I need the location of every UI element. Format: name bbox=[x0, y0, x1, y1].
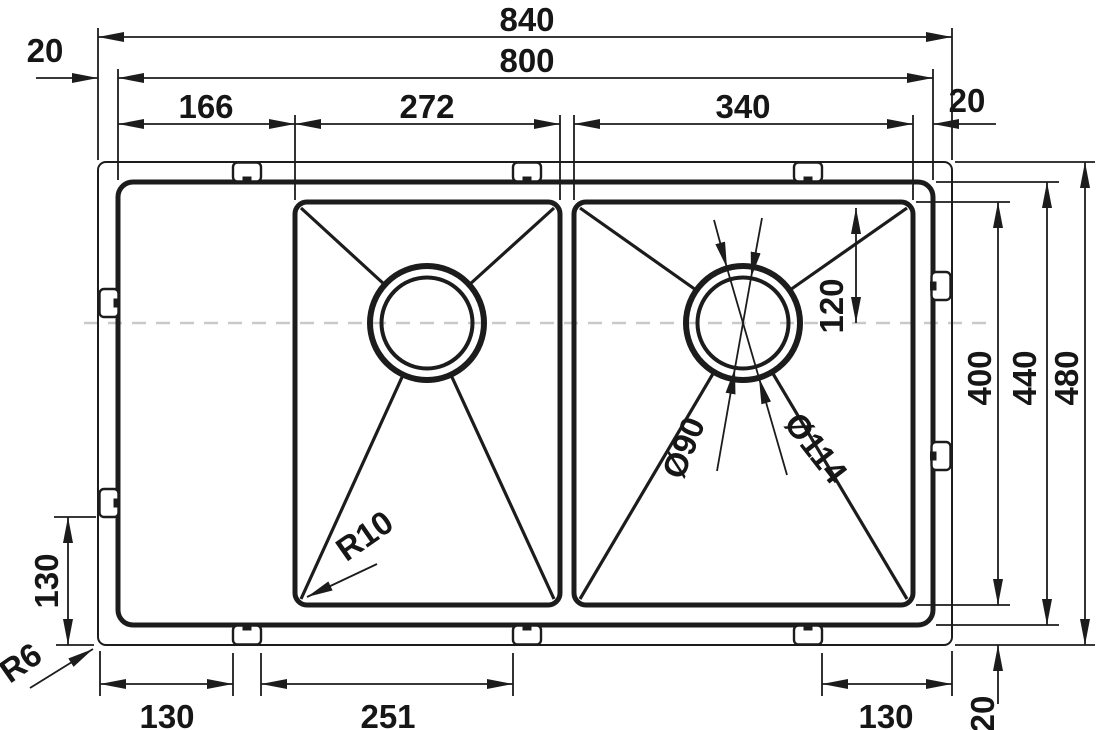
dimension-20-bottom: 20 bbox=[964, 645, 1001, 730]
technical-drawing-page: 840 800 20 166 272 340 20 120 400 440 48… bbox=[0, 0, 1097, 730]
mounting-clip-bottom-right bbox=[794, 624, 822, 645]
diagonal-line bbox=[790, 208, 907, 290]
dim-label-overhang-right: 20 bbox=[949, 82, 986, 119]
dimension-20-right: 20 bbox=[933, 82, 996, 124]
dim-label-clip-left-span: 130 bbox=[139, 698, 194, 730]
dimension-251: 251 bbox=[261, 684, 513, 730]
dim-label-overall-width: 840 bbox=[499, 1, 554, 38]
dim-label-overall-depth: 480 bbox=[1048, 350, 1085, 405]
diagonal-line bbox=[580, 372, 714, 599]
radius-r10: R10 bbox=[307, 503, 400, 597]
dimension-272: 272 bbox=[295, 88, 560, 125]
dim-label-body-width: 800 bbox=[499, 42, 554, 79]
diagonal-line bbox=[580, 208, 696, 290]
dim-label-overhang-left: 20 bbox=[27, 32, 64, 69]
leader-line bbox=[714, 220, 727, 268]
dimension-840: 840 bbox=[98, 1, 952, 38]
radius-r6: R6 bbox=[0, 635, 93, 690]
dimension-130-bottom-right: 130 bbox=[822, 684, 952, 730]
mounting-clip-left-lower bbox=[100, 489, 121, 517]
mounting-clip-top-left bbox=[233, 163, 261, 184]
dim-label-clip-mid-span: 251 bbox=[360, 698, 415, 730]
dim-label-drain-offset: 120 bbox=[813, 278, 850, 333]
mounting-clip-left-upper bbox=[100, 289, 121, 317]
dimension-800: 800 bbox=[118, 42, 933, 79]
mounting-clip-right-upper bbox=[930, 272, 951, 300]
dimension-166: 166 bbox=[118, 88, 295, 125]
dim-label-clip-right-span: 130 bbox=[858, 698, 913, 730]
mounting-clip-right-lower bbox=[930, 442, 951, 470]
sink-technical-drawing: 840 800 20 166 272 340 20 120 400 440 48… bbox=[0, 0, 1097, 730]
dim-label-middle-bowl-width: 272 bbox=[399, 88, 454, 125]
leader-line bbox=[307, 564, 377, 597]
mounting-clip-top-right bbox=[794, 163, 822, 184]
dimension-400: 400 bbox=[961, 202, 998, 605]
mounting-clip-top-center bbox=[513, 163, 541, 184]
leader-line bbox=[727, 268, 759, 378]
dimension-130-left: 130 bbox=[28, 517, 68, 645]
dimension-340: 340 bbox=[574, 88, 913, 125]
diagonal-line bbox=[301, 208, 385, 285]
dim-label-right-bowl-width: 340 bbox=[715, 88, 770, 125]
dim-label-bowl-depth: 400 bbox=[961, 350, 998, 405]
dimension-440: 440 bbox=[1006, 182, 1047, 625]
mounting-clip-bottom-center bbox=[513, 624, 541, 645]
dim-label-drain-hole-diameter: Ø90 bbox=[655, 412, 713, 484]
dim-label-drainboard-width: 166 bbox=[178, 88, 233, 125]
dim-label-drain-flange-diameter: Ø114 bbox=[777, 405, 855, 490]
bowl-diagonals bbox=[301, 208, 907, 599]
dimension-480: 480 bbox=[1048, 162, 1085, 645]
dimension-20-left: 20 bbox=[27, 32, 98, 78]
sink-body bbox=[118, 182, 933, 625]
dimension-130-bottom-left: 130 bbox=[100, 684, 233, 730]
dim-label-overhang-bottom: 20 bbox=[964, 696, 1001, 730]
dim-label-clip-offset-left: 130 bbox=[28, 553, 65, 608]
leader-line bbox=[717, 368, 735, 471]
right-bowl bbox=[574, 202, 913, 605]
diagonal-line bbox=[451, 375, 554, 599]
mounting-clip-bottom-left bbox=[233, 624, 261, 645]
dim-label-body-depth: 440 bbox=[1006, 350, 1043, 405]
diagonal-line bbox=[469, 208, 554, 285]
diagonal-line bbox=[772, 372, 907, 599]
